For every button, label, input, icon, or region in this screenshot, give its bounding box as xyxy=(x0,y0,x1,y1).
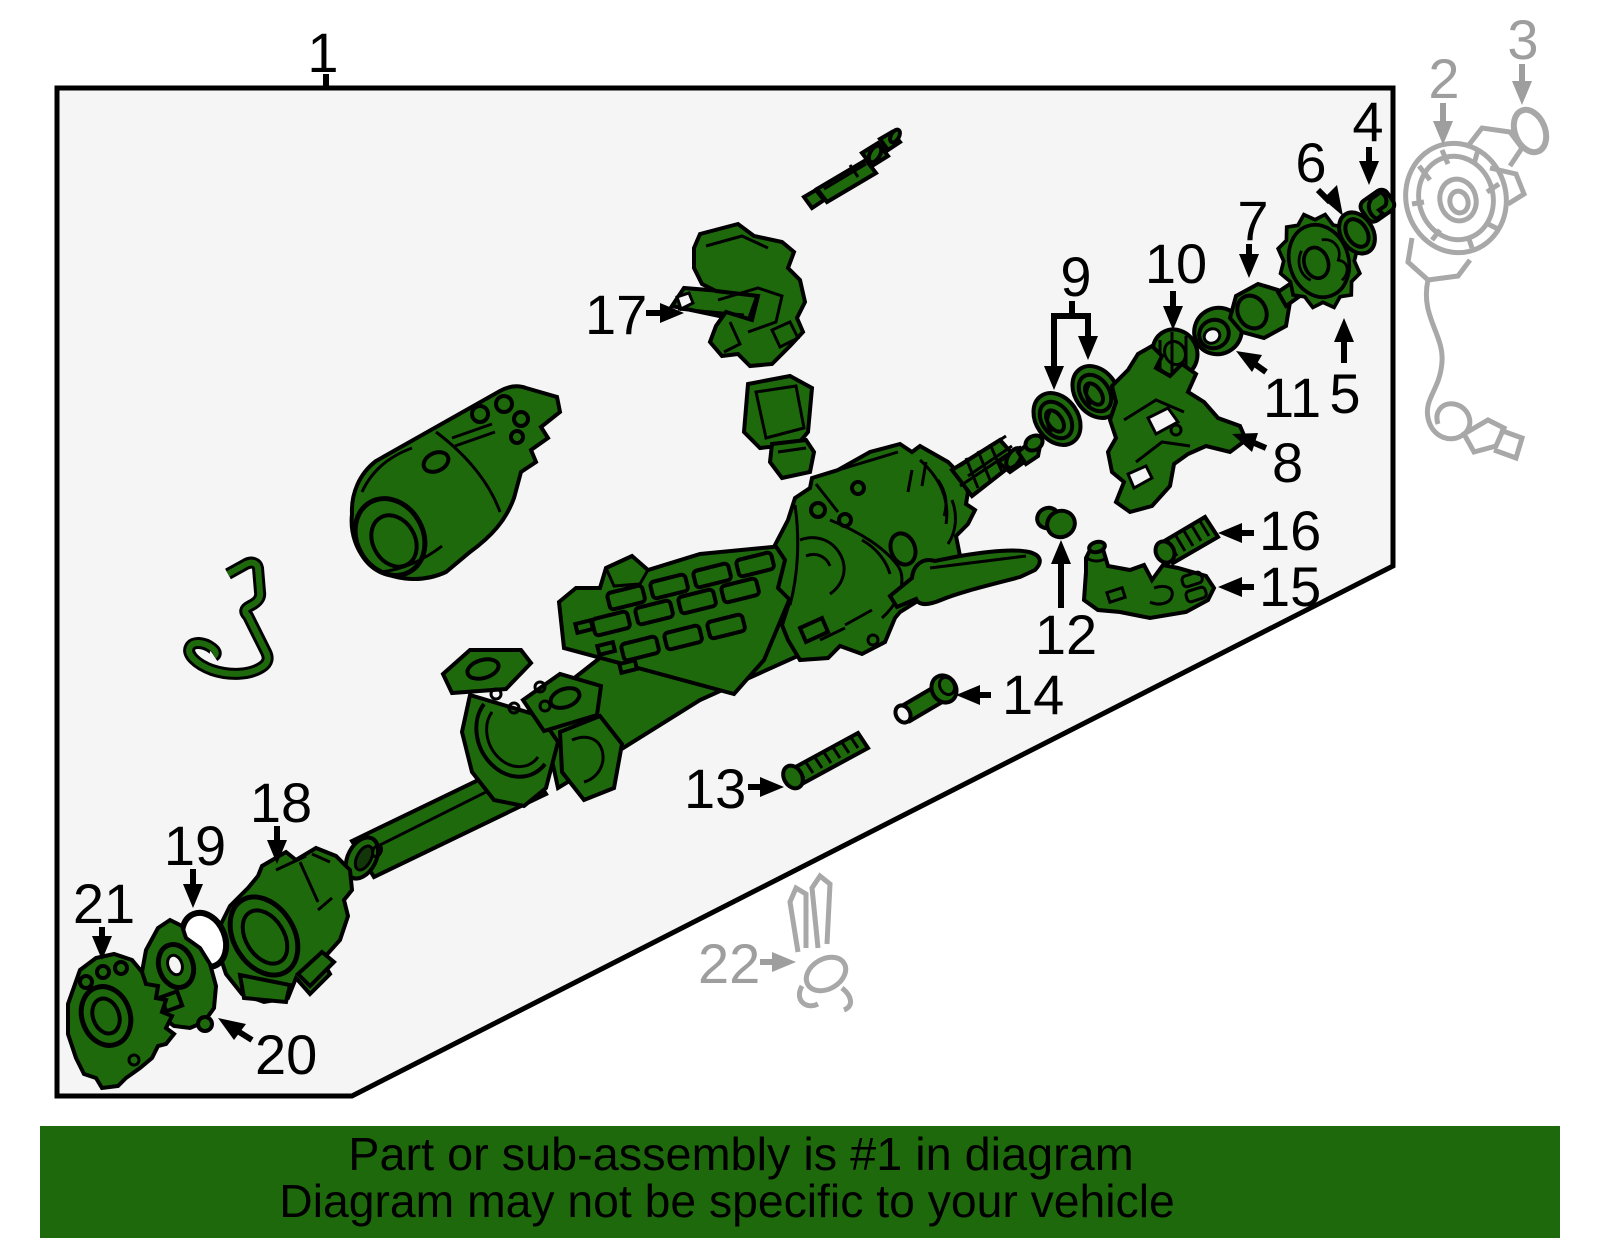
svg-text:11: 11 xyxy=(1263,366,1321,429)
svg-text:18: 18 xyxy=(250,771,312,834)
svg-text:22: 22 xyxy=(698,932,760,995)
svg-text:5: 5 xyxy=(1329,362,1360,425)
svg-text:2: 2 xyxy=(1428,47,1459,110)
svg-text:7: 7 xyxy=(1237,189,1268,252)
svg-text:4: 4 xyxy=(1352,90,1383,153)
svg-text:10: 10 xyxy=(1145,232,1207,295)
svg-text:8: 8 xyxy=(1272,431,1303,494)
svg-text:19: 19 xyxy=(164,814,226,877)
svg-text:12: 12 xyxy=(1035,603,1097,666)
svg-text:13: 13 xyxy=(684,757,746,820)
svg-text:3: 3 xyxy=(1507,8,1538,71)
svg-text:16: 16 xyxy=(1259,499,1321,562)
svg-text:20: 20 xyxy=(255,1023,317,1086)
svg-text:14: 14 xyxy=(1002,663,1064,726)
svg-text:15: 15 xyxy=(1259,555,1321,618)
svg-text:17: 17 xyxy=(585,283,647,346)
svg-text:21: 21 xyxy=(73,872,135,935)
svg-text:Part or sub-assembly is #1 in: Part or sub-assembly is #1 in diagram xyxy=(348,1128,1133,1180)
svg-text:9: 9 xyxy=(1060,245,1091,308)
svg-text:Diagram may not be specific to: Diagram may not be specific to your vehi… xyxy=(279,1175,1174,1227)
svg-text:6: 6 xyxy=(1295,131,1326,194)
